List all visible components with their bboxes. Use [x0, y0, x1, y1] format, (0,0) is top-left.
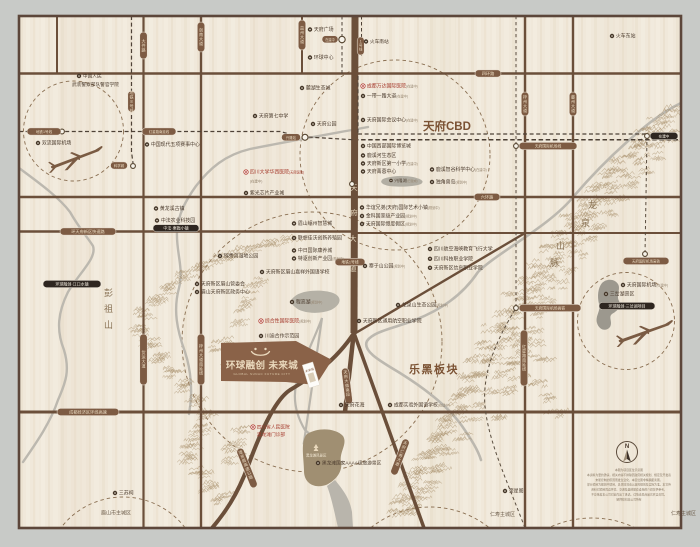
svg-text:一带一路大道(在建中): 一带一路大道(在建中)	[367, 93, 408, 100]
svg-text:四环路: 四环路	[482, 70, 495, 77]
svg-text:天府国际机场(在建中): 天府国际机场(在建中)	[627, 282, 668, 289]
svg-text:眉山天府新区政务中心: 眉山天府新区政务中心	[201, 289, 250, 296]
svg-text:剑南大道: 剑南大道	[199, 27, 203, 47]
svg-text:眉山市主城区: 眉山市主城区	[101, 510, 131, 517]
svg-text:双流国际机场: 双流国际机场	[42, 140, 71, 147]
svg-text:龙泉山生态公园(规划中): 龙泉山生态公园(规划中)	[402, 302, 448, 309]
svg-text:黑龙滩国家AAAA级旅游景区: 黑龙滩国家AAAA级旅游景区	[322, 460, 382, 467]
svg-text:华谊兄弟(天府)国际艺术小镇(规划中): 华谊兄弟(天府)国际艺术小镇(规划中)	[366, 204, 440, 211]
svg-text:乐黑板块: 乐黑板块	[409, 362, 459, 376]
svg-text:麓湖生态城: 麓湖生态城	[306, 85, 331, 92]
svg-text:解释权归本公司所有: 解释权归本公司所有	[616, 497, 641, 501]
svg-text:货运大道: 货运大道	[141, 349, 145, 369]
svg-text:独角兽岛(规划中): 独角兽岛(规划中)	[436, 179, 467, 186]
svg-text:鹿溪智谷科学中心(在建中): 鹿溪智谷科学中心(在建中)	[436, 166, 487, 173]
svg-text:黄龙溪古镇: 黄龙溪古镇	[160, 205, 185, 212]
svg-text:本资料为要约邀请，相关内容不排除因政府相关规划、规定及开发商: 本资料为要约邀请，相关内容不排除因政府相关规划、规定及开发商	[587, 473, 671, 477]
svg-text:奎星阁: 奎星阁	[509, 488, 524, 495]
svg-text:(在建中): (在建中)	[250, 179, 262, 184]
svg-text:环球融创·江口水镇: 环球融创·江口水镇	[55, 281, 88, 287]
svg-text:天府新区眉山管委会: 天府新区眉山管委会	[201, 281, 245, 288]
svg-text:锦秀河湿地公园: 锦秀河湿地公园	[224, 253, 258, 260]
svg-text:山: 山	[556, 241, 565, 251]
svg-text:科学城: 科学城	[114, 163, 125, 168]
svg-text:天府CBD: 天府CBD	[423, 119, 471, 133]
svg-text:天府国际会议中心(在建中): 天府国际会议中心(在建中)	[367, 117, 418, 124]
svg-text:天府新区通用航空职业学院: 天府新区通用航空职业学院	[363, 318, 422, 325]
svg-text:四川航空海峡教育飞行大学: 四川航空海峡教育飞行大学	[434, 246, 493, 253]
svg-text:泉: 泉	[581, 217, 590, 228]
svg-text:中国人民: 中国人民	[83, 73, 102, 80]
svg-text:天府国际机场高铁: 天府国际机场高铁	[535, 306, 566, 311]
svg-text:梓州大道南延线: 梓州大道南延线	[199, 342, 203, 375]
svg-text:大件路: 大件路	[141, 37, 145, 52]
svg-text:本图为项目区位示意图: 本图为项目区位示意图	[615, 468, 643, 472]
svg-text:成都万达国际医院(在建中): 成都万达国际医院(在建中)	[367, 83, 418, 90]
svg-text:部分项目为规划中项目，具体情况请以政府规划及实际为准。本宣传: 部分项目为规划中项目，具体情况请以政府规划及实际为准。本宣传	[587, 483, 671, 487]
svg-text:川渝合作示范园: 川渝合作示范园	[265, 333, 299, 340]
svg-text:龙: 龙	[588, 199, 597, 210]
svg-text:环球中心: 环球中心	[314, 54, 334, 61]
svg-text:中法·東臨小镇: 中法·東臨小镇	[163, 225, 188, 231]
svg-text:黑龙滩门诊部: 黑龙滩门诊部	[257, 431, 285, 438]
svg-text:中国西部国际博览城: 中国西部国际博览城	[367, 143, 411, 150]
svg-text:不意味着本公司对此作出了承诺。详情请见商品房买卖合同。: 不意味着本公司对此作出了承诺。详情请见商品房买卖合同。	[591, 493, 667, 497]
svg-text:天府国际慢度假区(规划中): 天府国际慢度假区(规划中)	[366, 221, 417, 228]
svg-text:在建中: 在建中	[325, 37, 335, 42]
svg-text:仁寿主城区: 仁寿主城区	[490, 511, 515, 518]
svg-text:红星路南延线: 红星路南延线	[522, 343, 526, 372]
svg-text:程高湖(规划中): 程高湖(规划中)	[296, 299, 322, 306]
svg-text:天府广场: 天府广场	[314, 26, 334, 33]
svg-text:大: 大	[350, 234, 357, 243]
svg-text:天府新区信息职业学院: 天府新区信息职业学院	[434, 265, 483, 272]
svg-text:天府花海: 天府花海	[345, 402, 365, 409]
svg-text:寨子山公园(规划中): 寨子山公园(规划中)	[369, 263, 405, 270]
svg-text:夔州大道: 夔州大道	[571, 94, 575, 114]
svg-text:天府公园: 天府公园	[317, 121, 337, 128]
svg-text:中法农业科技园: 中法农业科技园	[161, 217, 195, 224]
svg-text:火车东站: 火车东站	[616, 33, 636, 40]
svg-text:鹿溪河生态区: 鹿溪河生态区	[367, 152, 396, 159]
svg-text:未能控制的原因而发生变化，本区位图非精确距离图。: 未能控制的原因而发生变化，本区位图非精确距离图。	[595, 478, 662, 482]
svg-text:益州大道: 益州大道	[300, 25, 304, 45]
svg-text:山: 山	[104, 320, 113, 330]
svg-text:仁寿主城区: 仁寿主城区	[671, 510, 696, 517]
svg-text:武装警察部队警官学院: 武装警察部队警官学院	[72, 81, 119, 88]
svg-text:资料对项目周边环境、交通及其他配套设施的介绍仅供参考，: 资料对项目周边环境、交通及其他配套设施的介绍仅供参考，	[591, 488, 667, 492]
svg-text:祖: 祖	[104, 303, 113, 314]
svg-text:脉: 脉	[550, 257, 559, 268]
svg-text:六环路: 六环路	[481, 194, 494, 201]
svg-text:特驱创新产业园(规划中): 特驱创新产业园(规划中)	[298, 255, 344, 262]
svg-text:环球融创·三岔湖项目: 环球融创·三岔湖项目	[608, 303, 645, 309]
svg-text:综合性国际医院(规划中): 综合性国际医院(规划中)	[265, 318, 311, 325]
svg-text:天府第七中学: 天府第七中学	[259, 113, 288, 120]
svg-text:梓州大道: 梓州大道	[523, 94, 527, 114]
svg-text:红星路南延线: 红星路南延线	[149, 129, 170, 134]
svg-text:环球融创 未来城: 环球融创 未来城	[226, 360, 298, 372]
svg-text:天府菁蓉中心: 天府菁蓉中心	[367, 168, 396, 175]
svg-text:四川大学华西医院(天府医院): 四川大学华西医院(天府医院)	[250, 169, 304, 176]
svg-text:成都实验外国语学校(在建中): 成都实验外国语学校(在建中)	[394, 402, 450, 409]
svg-text:府: 府	[351, 208, 358, 217]
svg-text:天府国际机场高铁: 天府国际机场高铁	[632, 259, 660, 264]
svg-text:成都经济区环线高速: 成都经济区环线高速	[69, 409, 108, 416]
svg-text:中日国际康养城: 中日国际康养城	[298, 247, 332, 254]
svg-text:紫光芯片产业城: 紫光芯片产业城	[250, 190, 284, 197]
svg-text:黑龙滩风景区: 黑龙滩风景区	[306, 453, 327, 458]
svg-text:火车南站: 火车南站	[370, 38, 389, 45]
svg-text:联想佳沃创新养殖园: 联想佳沃创新养殖园	[298, 235, 342, 242]
svg-text:地铁1号线: 地铁1号线	[36, 129, 53, 134]
svg-text:兴隆站: 兴隆站	[286, 135, 297, 140]
svg-text:彭: 彭	[104, 287, 113, 298]
svg-text:三岔湖景区: 三岔湖景区	[610, 291, 635, 298]
svg-text:地铁1号线: 地铁1号线	[341, 260, 359, 265]
svg-text:四川省人民医院: 四川省人民医院	[257, 424, 290, 431]
svg-text:天府新区第一小学(在建中): 天府新区第一小学(在建中)	[367, 160, 418, 167]
svg-text:三苏祠: 三苏祠	[119, 490, 134, 497]
svg-text:四川科技职业学院: 四川科技职业学院	[434, 256, 473, 263]
svg-text:兴隆湖(已建成): 兴隆湖(已建成)	[394, 177, 418, 184]
svg-text:GLOBAL SUNAC FUTURE CITY: GLOBAL SUNAC FUTURE CITY	[233, 372, 290, 376]
svg-text:天府新区眉山嘉祥外国语学校: 天府新区眉山嘉祥外国语学校	[266, 269, 330, 276]
svg-text:眉山岷州智慧城: 眉山岷州智慧城	[298, 220, 332, 227]
svg-text:环天府新区快速路: 环天府新区快速路	[71, 228, 105, 235]
svg-text:金科国家级产业园(规划中): 金科国家级产业园(规划中)	[366, 213, 417, 220]
svg-text:在建中: 在建中	[659, 134, 670, 139]
svg-text:中国现代五项赛事中心: 中国现代五项赛事中心	[151, 141, 200, 148]
svg-text:天府国际机场线: 天府国际机场线	[535, 144, 562, 149]
svg-text:N: N	[625, 444, 629, 450]
